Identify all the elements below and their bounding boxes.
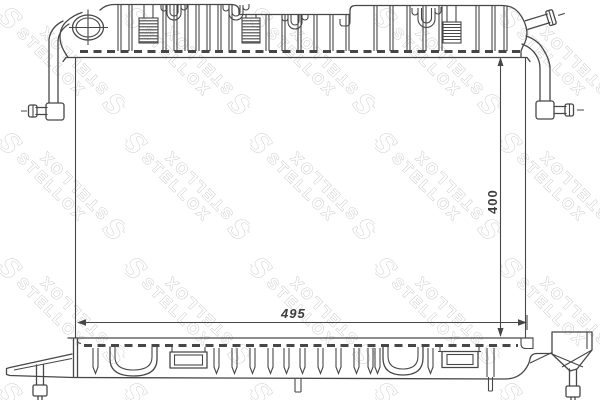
radiator-technical-drawing: SSTELLOX SSTELLOX bbox=[0, 0, 600, 400]
stellox-watermark-layer bbox=[0, 0, 600, 400]
drawing-canvas: SSTELLOX SSTELLOX bbox=[0, 0, 600, 400]
width-dimension-label: 495 bbox=[280, 306, 306, 321]
height-dimension-label: 400 bbox=[485, 189, 500, 214]
